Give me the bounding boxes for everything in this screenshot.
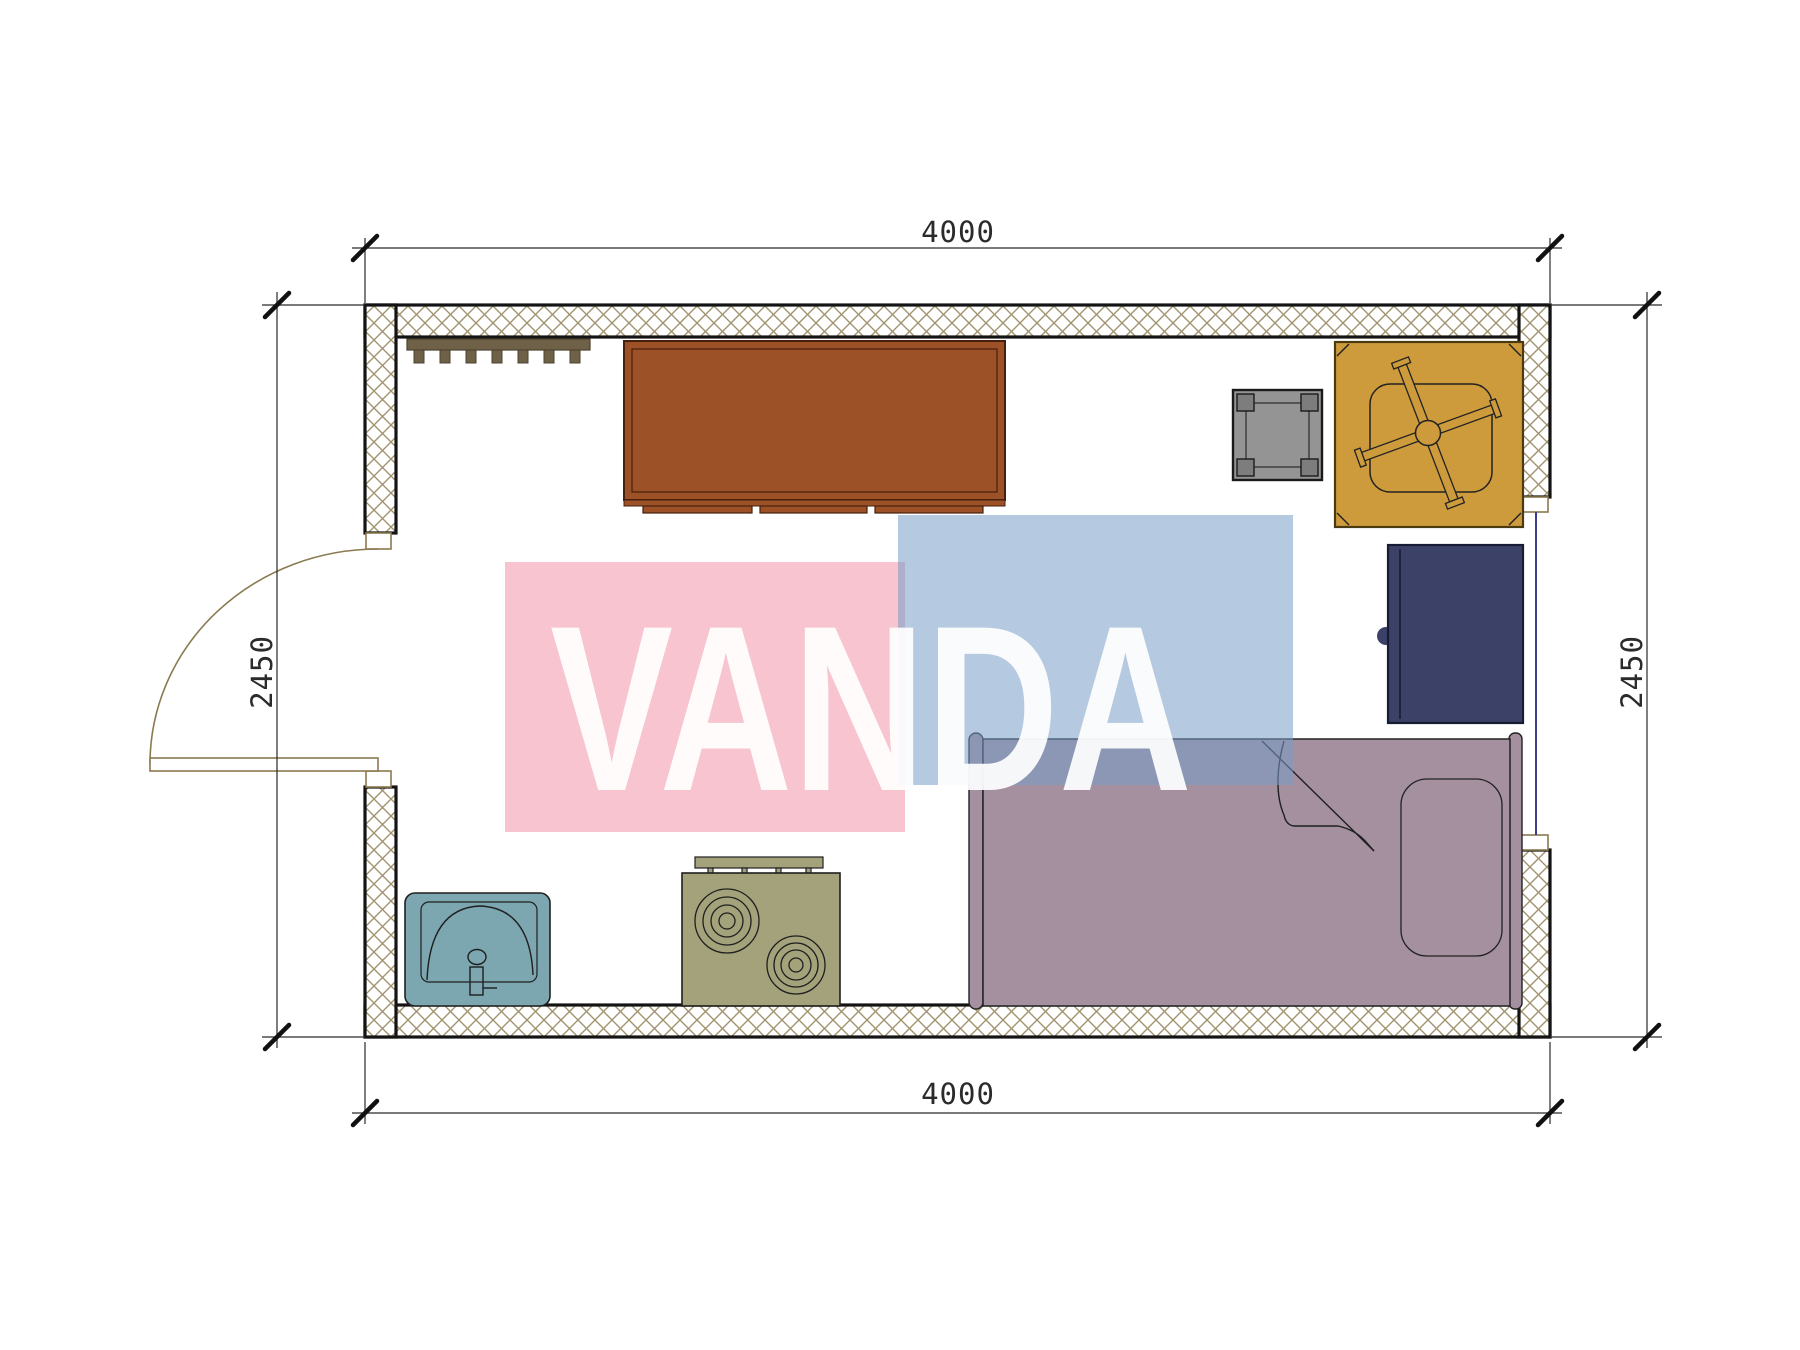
wall-right-lower bbox=[1519, 850, 1550, 1037]
floor-plan-canvas: 4000 4000 2450 2450 VANDA bbox=[0, 0, 1800, 1350]
dimension-left-label: 2450 bbox=[245, 635, 279, 709]
bed-footboard bbox=[1509, 733, 1522, 1009]
watermark-text: VANDA bbox=[550, 577, 1192, 841]
nightstand-body bbox=[1388, 545, 1523, 723]
nightstand bbox=[1377, 545, 1523, 723]
dimension-right-label: 2450 bbox=[1615, 635, 1649, 709]
coat-rack-rail bbox=[407, 339, 590, 350]
bed-pillow bbox=[1401, 779, 1502, 956]
floor-plan-drawing: 4000 4000 2450 2450 VANDA bbox=[0, 0, 1800, 1350]
chair-hub bbox=[1416, 421, 1441, 446]
dimension-top: 4000 bbox=[352, 215, 1562, 303]
watermark: VANDA bbox=[505, 515, 1293, 841]
door-leaf bbox=[150, 758, 378, 771]
dimension-left: 2450 bbox=[245, 292, 365, 1049]
sink bbox=[405, 893, 550, 1006]
wall-left-upper bbox=[365, 305, 396, 533]
coat-rack bbox=[407, 339, 590, 363]
office-chair bbox=[1335, 342, 1523, 527]
door-jamb-top bbox=[366, 533, 391, 549]
wardrobe-base-rim bbox=[624, 500, 1005, 506]
dimension-bottom: 4000 bbox=[352, 1042, 1562, 1125]
wall-left-lower bbox=[365, 787, 396, 1037]
dimension-bottom-label: 4000 bbox=[921, 1077, 995, 1111]
window bbox=[1521, 497, 1548, 850]
wardrobe-body bbox=[624, 341, 1005, 500]
wall-top bbox=[365, 305, 1550, 337]
dimension-top-label: 4000 bbox=[921, 215, 995, 249]
window-jamb-bottom bbox=[1521, 835, 1548, 850]
dimension-right: 2450 bbox=[1550, 292, 1662, 1049]
window-jamb-top bbox=[1521, 497, 1548, 512]
wardrobe-feet bbox=[643, 506, 983, 513]
stool bbox=[1233, 390, 1322, 480]
stove bbox=[682, 857, 840, 1006]
stove-handle bbox=[695, 857, 823, 868]
wall-bottom bbox=[365, 1005, 1550, 1037]
door-jamb-bottom bbox=[366, 771, 391, 787]
wardrobe bbox=[624, 341, 1005, 513]
coat-rack-hooks bbox=[414, 350, 580, 363]
